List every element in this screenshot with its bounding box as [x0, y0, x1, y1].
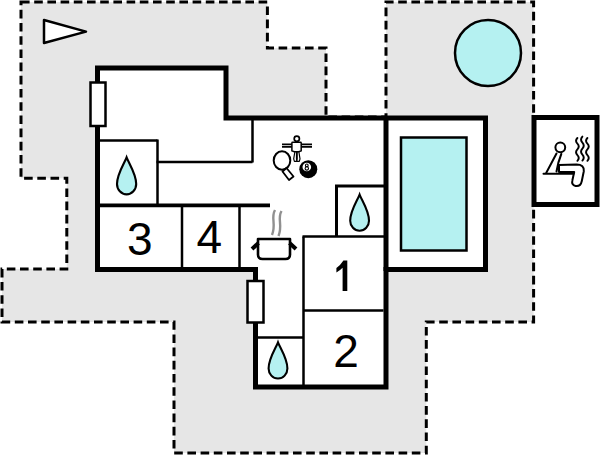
- svg-text:4: 4: [197, 211, 223, 263]
- svg-text:3: 3: [127, 213, 153, 265]
- svg-text:2: 2: [333, 325, 359, 377]
